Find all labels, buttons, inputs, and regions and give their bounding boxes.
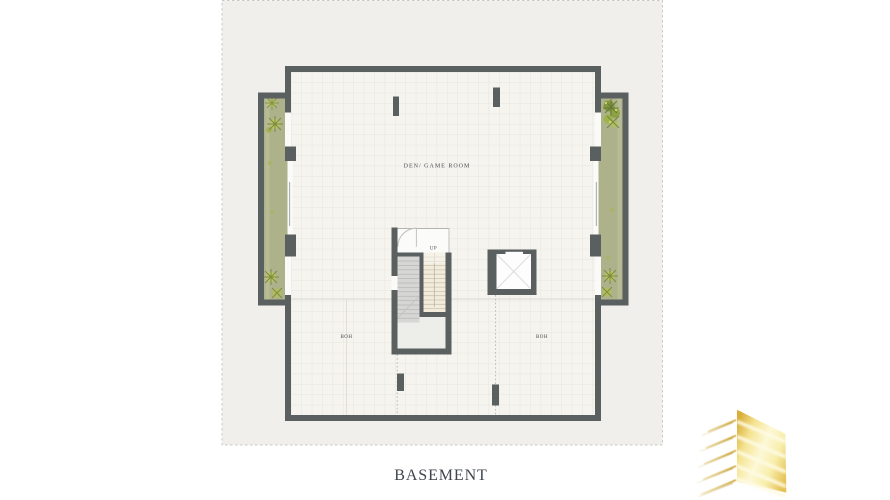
svg-text:BOH: BOH [340, 335, 352, 340]
svg-text:BOH: BOH [536, 335, 548, 340]
svg-text:BASEMENT: BASEMENT [394, 467, 487, 484]
svg-text:DEN/ GAME ROOM: DEN/ GAME ROOM [404, 164, 471, 170]
svg-text:UP: UP [430, 247, 437, 252]
